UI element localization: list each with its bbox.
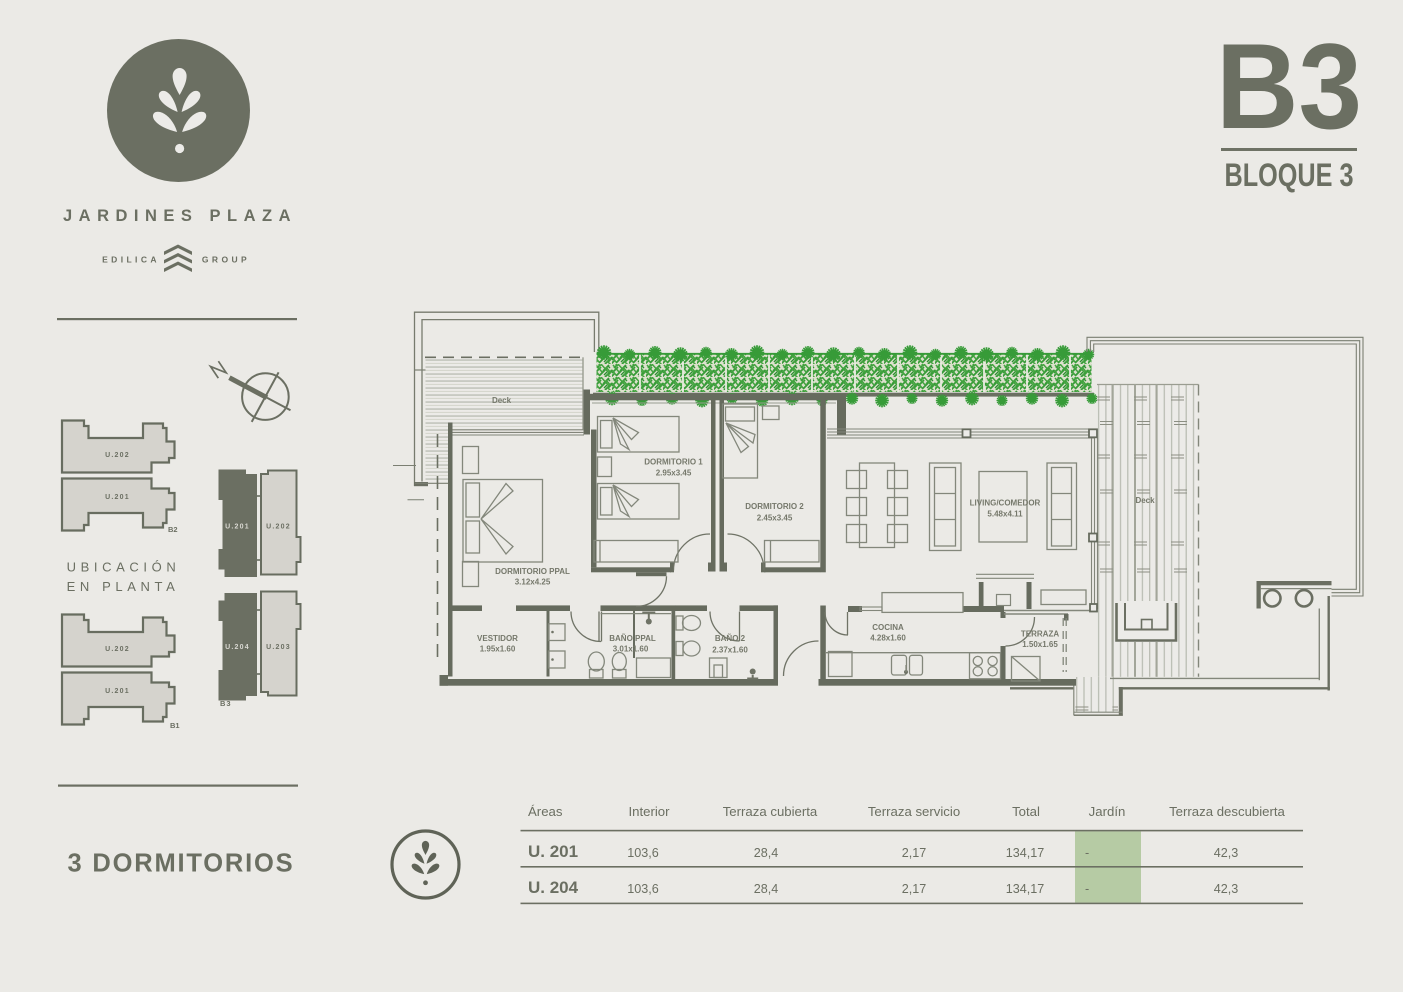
svg-text:2.37x1.60: 2.37x1.60 (712, 646, 748, 655)
svg-text:134,17: 134,17 (1006, 846, 1045, 860)
svg-text:134,17: 134,17 (1006, 882, 1045, 896)
svg-text:42,3: 42,3 (1214, 882, 1239, 896)
svg-text:-: - (1085, 846, 1089, 860)
svg-text:B2: B2 (168, 525, 178, 534)
svg-text:TERRAZA: TERRAZA (1021, 630, 1059, 639)
svg-text:JARDINES PLAZA: JARDINES PLAZA (63, 207, 297, 225)
svg-text:EN PLANTA: EN PLANTA (67, 579, 180, 594)
svg-text:EDILICA: EDILICA (102, 255, 160, 265)
svg-text:BAÑO PPAL: BAÑO PPAL (609, 634, 656, 643)
svg-text:GROUP: GROUP (202, 255, 250, 265)
svg-text:DORMITORIO 1: DORMITORIO 1 (644, 458, 703, 467)
svg-text:3.12x4.25: 3.12x4.25 (515, 578, 551, 587)
svg-text:Total: Total (1012, 804, 1040, 819)
svg-text:U.203: U.203 (266, 644, 291, 651)
svg-text:1.50x1.65: 1.50x1.65 (1022, 640, 1058, 649)
svg-text:U.202: U.202 (105, 646, 130, 653)
svg-text:Áreas: Áreas (528, 804, 563, 819)
svg-text:Terraza servicio: Terraza servicio (868, 804, 960, 819)
svg-text:COCINA: COCINA (872, 623, 904, 632)
svg-text:DORMITORIO PPAL: DORMITORIO PPAL (495, 567, 570, 576)
svg-text:BLOQUE 3: BLOQUE 3 (1225, 157, 1354, 193)
svg-text:B3: B3 (220, 699, 232, 708)
svg-text:103,6: 103,6 (627, 846, 659, 860)
svg-text:U.201: U.201 (105, 494, 130, 501)
svg-text:2,17: 2,17 (902, 882, 927, 896)
svg-text:UBICACIÓN: UBICACIÓN (67, 560, 181, 575)
svg-text:U. 201: U. 201 (528, 842, 578, 861)
svg-text:103,6: 103,6 (627, 882, 659, 896)
svg-text:Terraza cubierta: Terraza cubierta (723, 804, 818, 819)
svg-text:DORMITORIO 2: DORMITORIO 2 (745, 502, 804, 511)
svg-text:1.95x1.60: 1.95x1.60 (480, 645, 516, 654)
svg-text:4.28x1.60: 4.28x1.60 (870, 634, 906, 643)
svg-text:B3: B3 (1216, 18, 1362, 154)
svg-text:LIVING/COMEDOR: LIVING/COMEDOR (970, 499, 1041, 508)
svg-text:3.01x1.60: 3.01x1.60 (613, 645, 649, 654)
svg-text:U.202: U.202 (105, 452, 130, 459)
svg-text:28,4: 28,4 (754, 882, 779, 896)
svg-text:Deck: Deck (1135, 496, 1155, 505)
svg-text:U. 204: U. 204 (528, 878, 579, 897)
svg-text:5.48x4.11: 5.48x4.11 (987, 510, 1023, 519)
svg-text:2.95x3.45: 2.95x3.45 (656, 469, 692, 478)
svg-text:Jardín: Jardín (1089, 804, 1126, 819)
svg-text:U.202: U.202 (266, 524, 291, 531)
svg-text:U.201: U.201 (225, 524, 250, 531)
svg-text:B1: B1 (170, 721, 180, 730)
svg-text:42,3: 42,3 (1214, 846, 1239, 860)
svg-text:VESTIDOR: VESTIDOR (477, 634, 518, 643)
svg-text:Deck: Deck (492, 396, 512, 405)
svg-text:BAÑO 2: BAÑO 2 (715, 634, 746, 643)
svg-text:-: - (1085, 882, 1089, 896)
svg-text:U.201: U.201 (105, 688, 130, 695)
svg-text:3 DORMITORIOS: 3 DORMITORIOS (68, 850, 295, 878)
svg-text:28,4: 28,4 (754, 846, 779, 860)
svg-text:Terraza descubierta: Terraza descubierta (1169, 804, 1285, 819)
svg-text:2,17: 2,17 (902, 846, 927, 860)
svg-text:Interior: Interior (628, 804, 670, 819)
svg-text:U.204: U.204 (225, 644, 250, 651)
svg-text:2.45x3.45: 2.45x3.45 (757, 514, 793, 523)
